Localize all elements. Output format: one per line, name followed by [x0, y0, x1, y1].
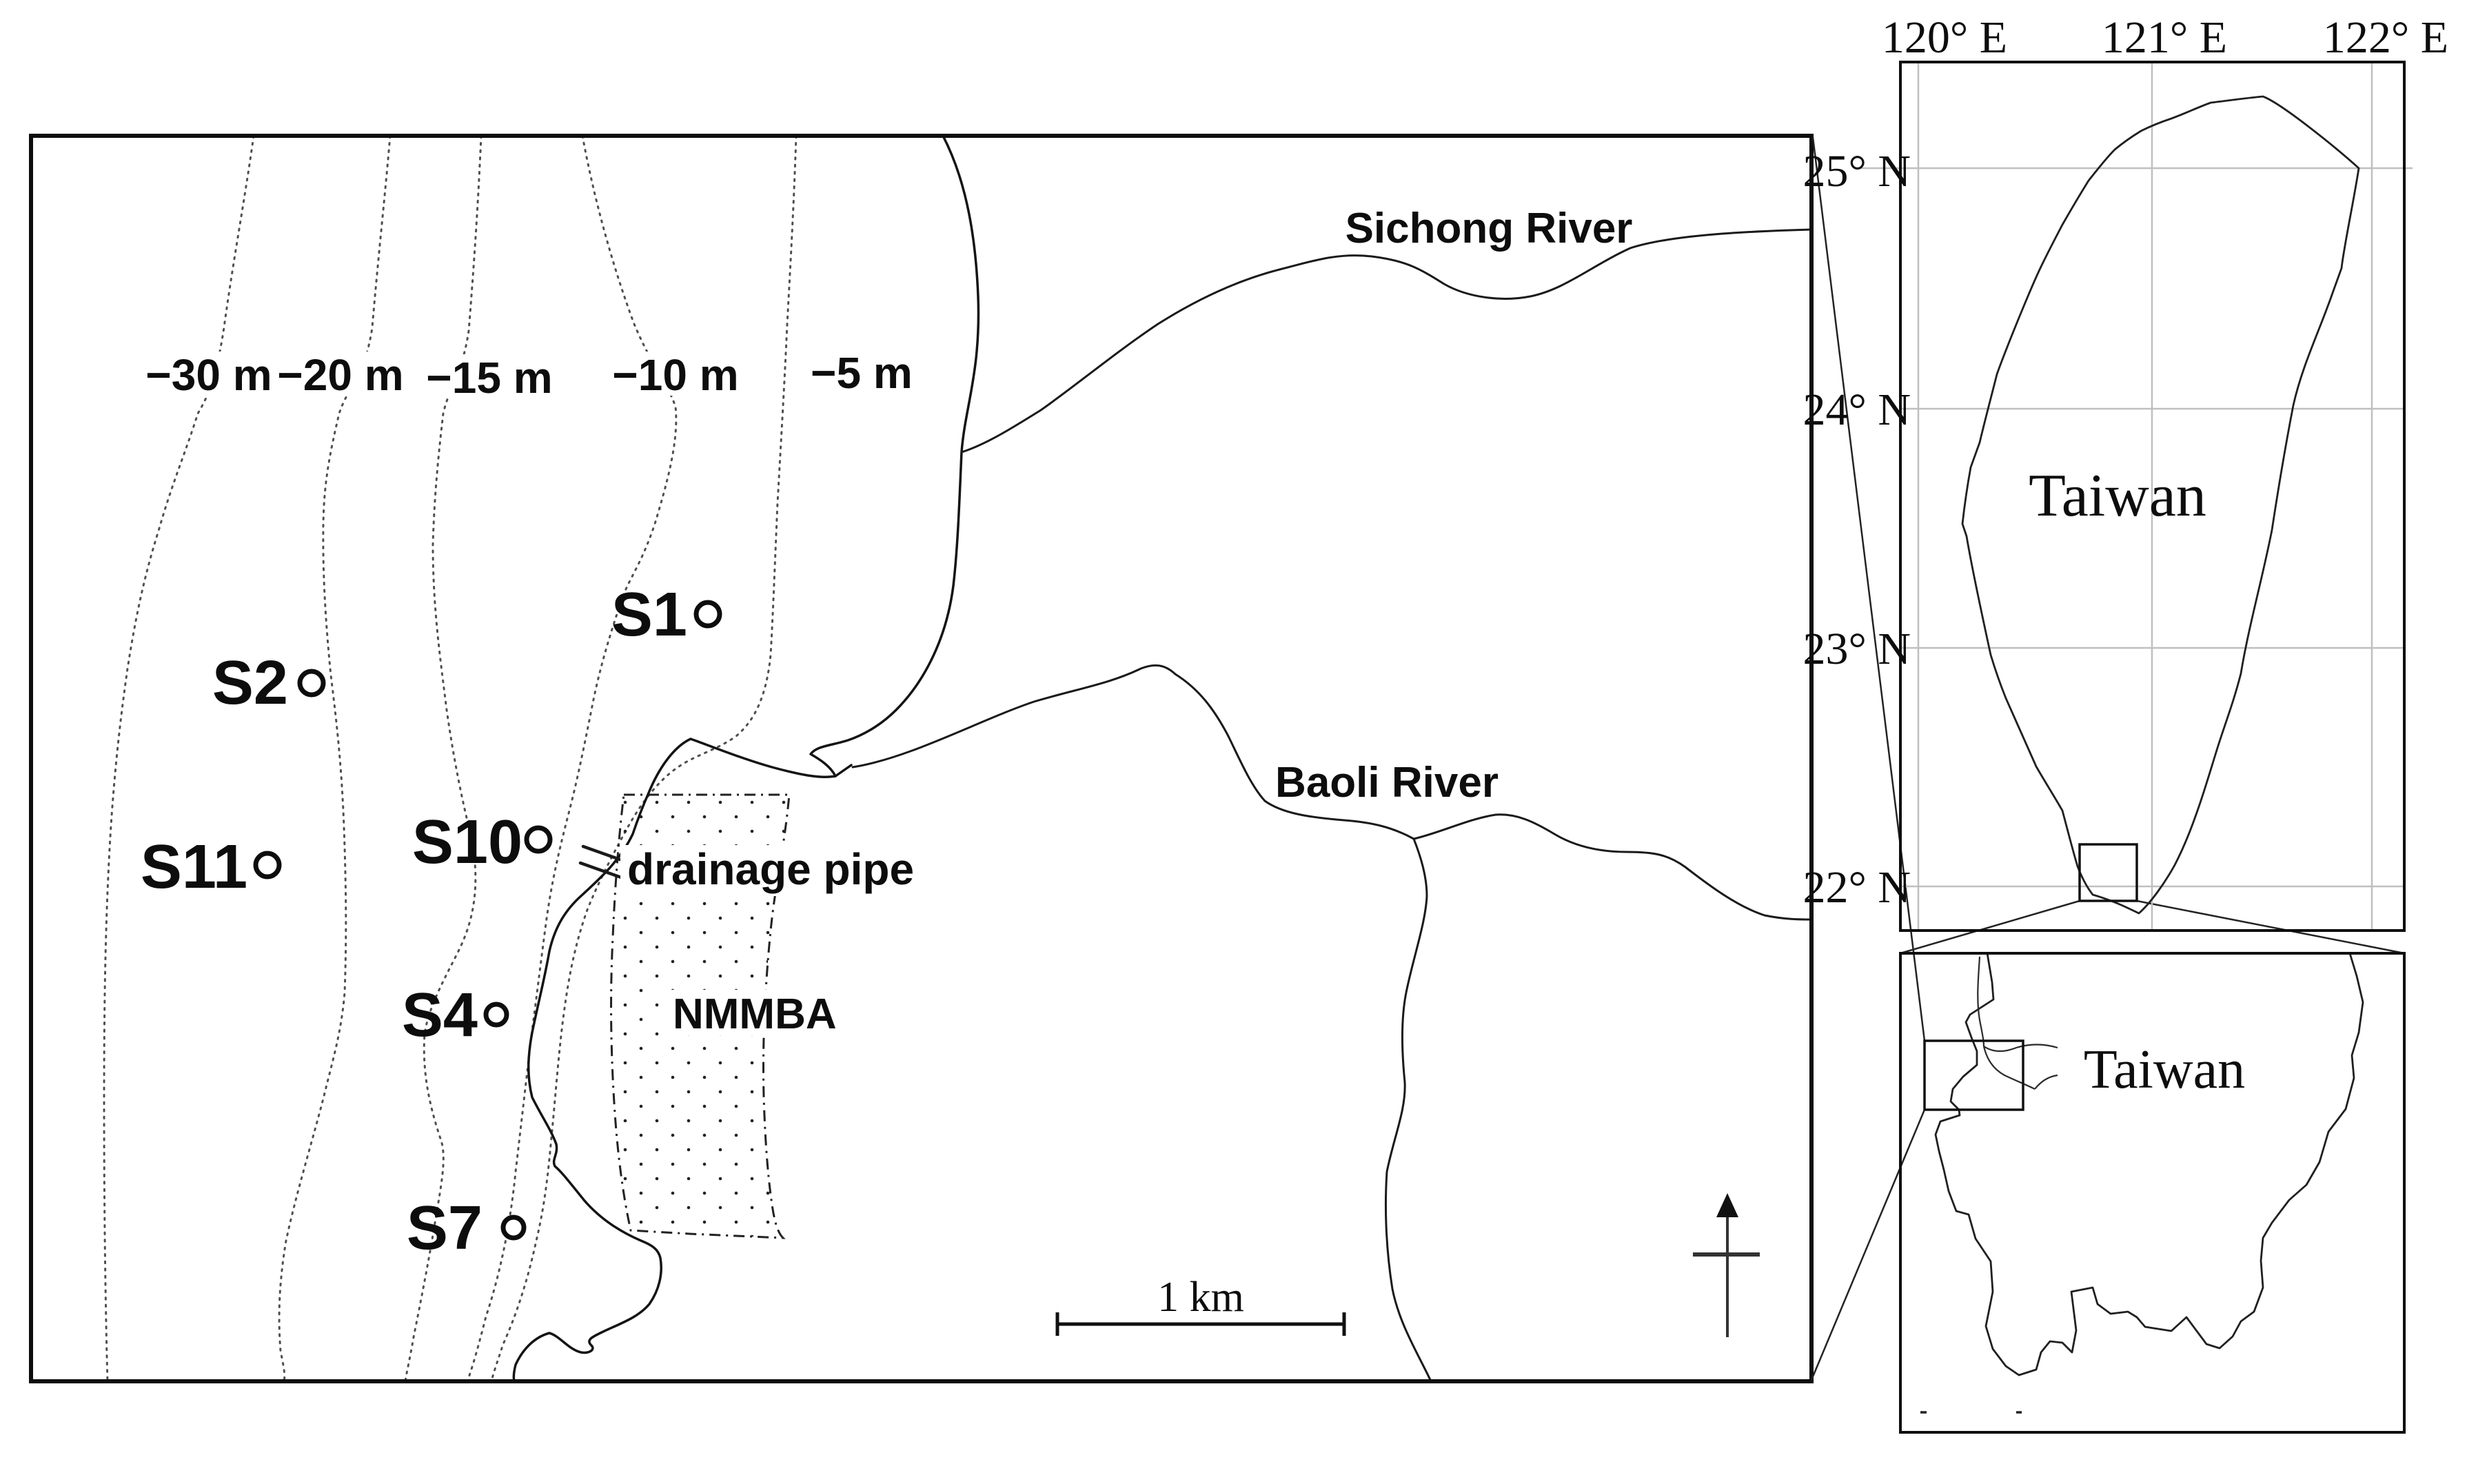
coastline — [811, 136, 978, 776]
inset-detail: Taiwan — [1900, 953, 2404, 1432]
station-s10: S10 — [412, 808, 550, 877]
main-map-frame — [31, 136, 1811, 1381]
connector-overview-to-detail-left — [1900, 901, 2080, 953]
lat-label-24n: 24° N — [1803, 385, 1911, 435]
lon-label-120e: 120° E — [1882, 12, 2007, 63]
station-s1-label: S1 — [611, 580, 687, 649]
lon-label-122e: 122° E — [2323, 12, 2448, 63]
map-canvas: −30 m −20 m −15 m −10 m −5 m Sichong Riv… — [0, 0, 2467, 1484]
depth-contour-minus-30m — [104, 136, 254, 1381]
station-s11-label: S11 — [141, 833, 247, 902]
station-s4: S4 — [402, 981, 507, 1050]
lat-label-25n: 25° N — [1803, 146, 1911, 196]
baoli-river-south-branch — [1385, 839, 1431, 1381]
scale-bar-label: 1 km — [1157, 1274, 1244, 1321]
sichong-river-label: Sichong River — [1346, 205, 1633, 252]
station-s4-label: S4 — [402, 981, 478, 1050]
contour-label-30m: −30 m — [145, 350, 272, 400]
nmmba-label: NMMBA — [673, 990, 837, 1038]
station-s7-label: S7 — [407, 1194, 483, 1263]
southern-taiwan-outline — [1936, 953, 2363, 1375]
inset-detail-frame — [1900, 953, 2404, 1432]
station-s4-marker — [486, 1004, 507, 1025]
contour-labels: −30 m −20 m −15 m −10 m −5 m — [145, 348, 915, 403]
north-arrow-icon — [1693, 1193, 1760, 1337]
depth-contour-minus-20m — [279, 136, 390, 1381]
detail-rivers — [1978, 957, 2058, 1089]
station-s2-label: S2 — [212, 649, 288, 718]
north-arrow-head — [1716, 1193, 1738, 1217]
lat-label-23n: 23° N — [1803, 624, 1911, 674]
station-s10-label: S10 — [412, 808, 522, 877]
station-s7: S7 — [407, 1194, 524, 1263]
overview-study-area-rect — [2080, 844, 2137, 901]
station-s10-marker — [527, 828, 550, 851]
station-s11: S11 — [141, 833, 279, 902]
station-s1-marker — [696, 602, 720, 626]
lat-label-22n: 22° N — [1803, 862, 1911, 913]
baoli-river-label: Baoli River — [1275, 759, 1499, 806]
study-site-map-figure: −30 m −20 m −15 m −10 m −5 m Sichong Riv… — [0, 0, 2467, 1484]
contour-label-5m: −5 m — [811, 348, 913, 398]
station-s2: S2 — [212, 649, 323, 718]
station-s2-marker — [300, 671, 323, 695]
drainage-pipe-label: drainage pipe — [627, 844, 914, 894]
connector-main-to-detail-bottom — [1811, 1110, 1925, 1380]
connector-overview-to-detail-right — [2137, 901, 2404, 953]
station-s11-marker — [256, 853, 279, 877]
sichong-river — [962, 230, 1811, 452]
contour-label-20m: −20 m — [277, 350, 403, 400]
detail-study-area-rect — [1925, 1041, 2023, 1110]
lon-label-121e: 121° E — [2102, 12, 2227, 63]
main-map: −30 m −20 m −15 m −10 m −5 m Sichong Riv… — [31, 136, 1811, 1381]
contour-label-15m: −15 m — [426, 353, 552, 403]
contour-label-10m: −10 m — [612, 350, 738, 400]
station-s1: S1 — [611, 580, 720, 649]
station-s7-marker — [503, 1217, 524, 1238]
inset-overview: Taiwan 120° E 121° E 122° E 25° N 24° N … — [1803, 12, 2448, 931]
overview-taiwan-label: Taiwan — [2029, 463, 2206, 529]
detail-taiwan-label: Taiwan — [2084, 1039, 2245, 1100]
